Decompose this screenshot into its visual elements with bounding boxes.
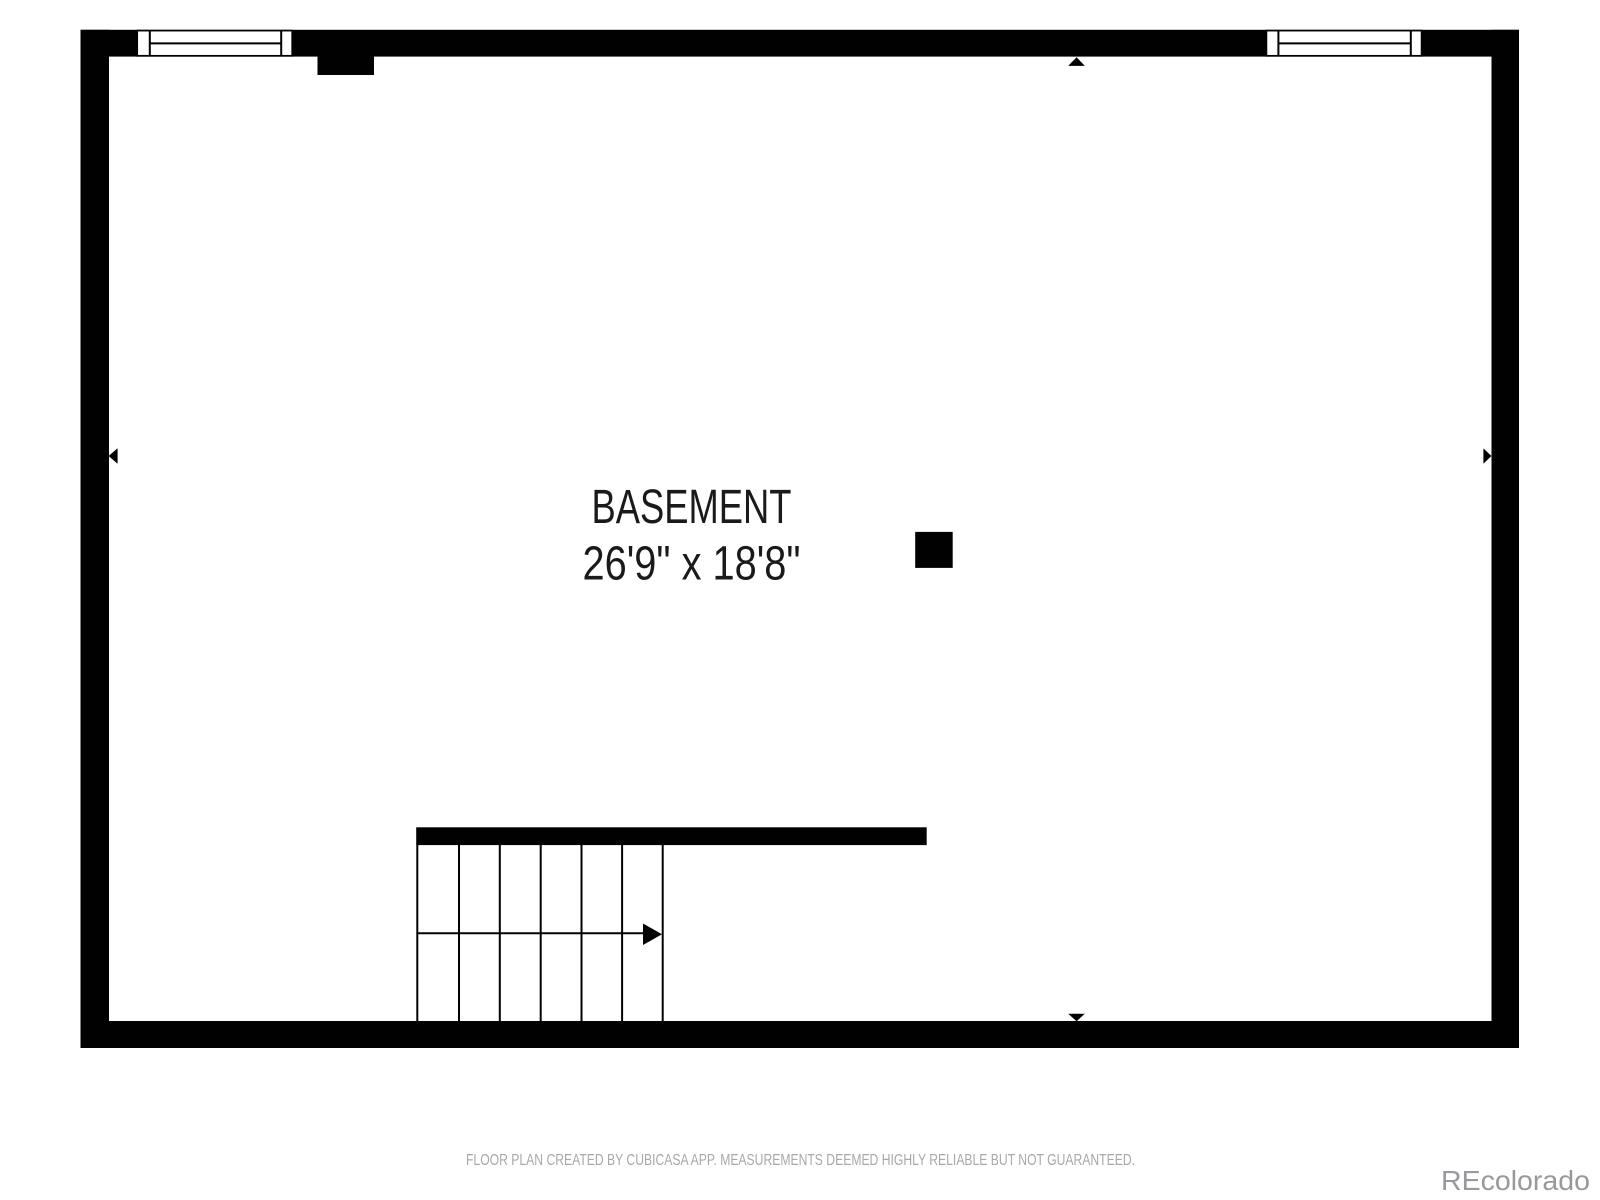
- svg-text:26'9" x 18'8": 26'9" x 18'8": [583, 538, 801, 591]
- svg-text:BASEMENT: BASEMENT: [592, 481, 792, 534]
- svg-text:FLOOR PLAN CREATED BY CUBICASA: FLOOR PLAN CREATED BY CUBICASA APP. MEAS…: [466, 1152, 1135, 1169]
- svg-text:REcolorado: REcolorado: [1441, 1165, 1590, 1196]
